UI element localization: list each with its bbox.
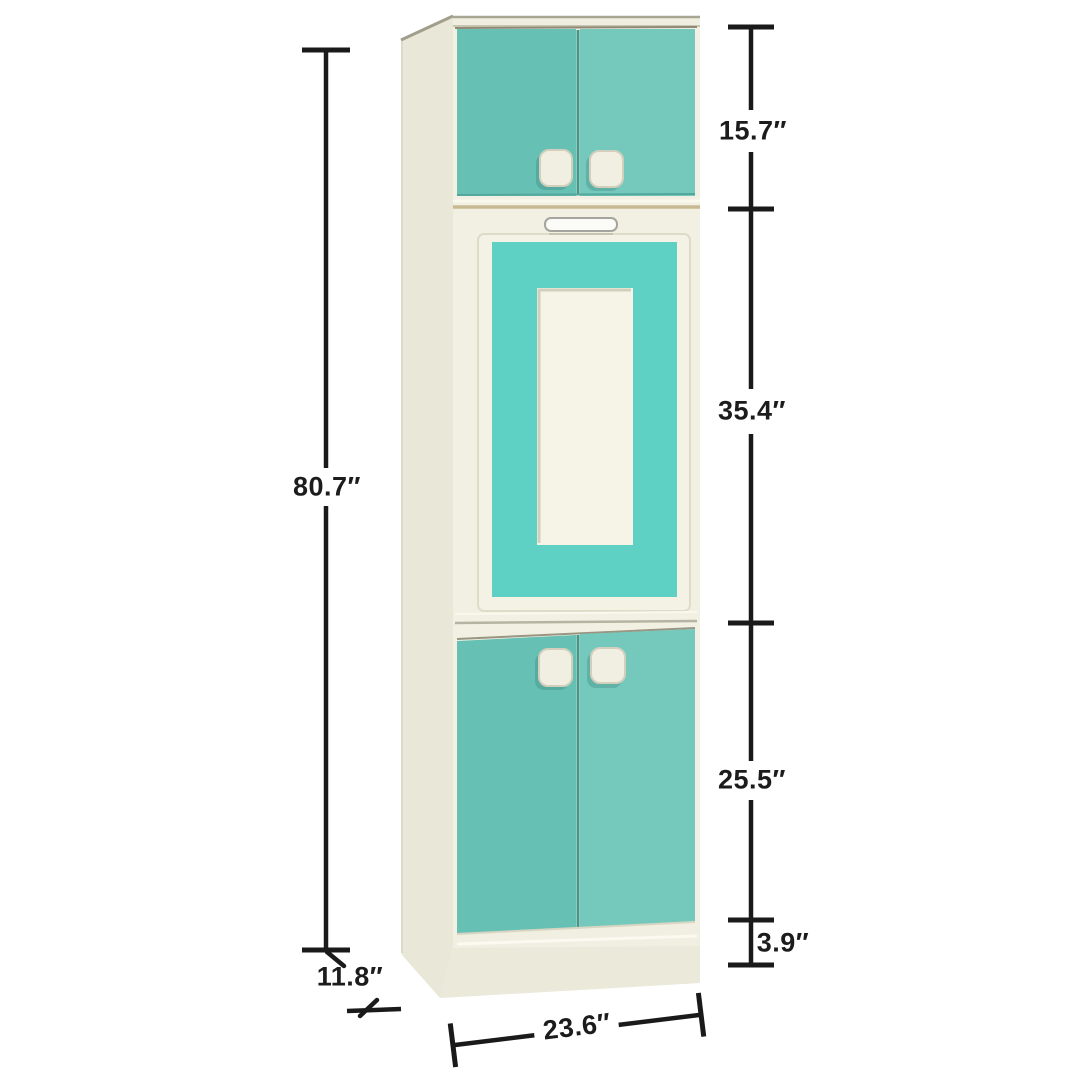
dim-overall-height-label: 80.7″ — [293, 472, 361, 503]
dim-cap — [450, 1023, 455, 1067]
dim-middle-section-label: 35.4″ — [718, 396, 786, 427]
top-right-door-handle — [590, 151, 623, 187]
top-left-door-handle — [540, 150, 572, 186]
cabinet-diagram-svg — [0, 0, 1080, 1080]
dim-depth-label: 11.8″ — [317, 962, 384, 993]
top-section-edge-line — [455, 27, 697, 28]
top-section — [455, 27, 697, 196]
cabinet-illustration — [401, 16, 700, 998]
dim-segment — [347, 1009, 401, 1011]
lower-section — [457, 628, 695, 935]
middle-section — [478, 218, 690, 611]
dim-segment — [453, 1035, 534, 1045]
plinth-base — [440, 946, 700, 998]
dim-cap — [698, 993, 703, 1037]
dim-top-section-label: 15.7″ — [719, 116, 787, 147]
dim-lower-section-label: 25.5″ — [718, 765, 786, 796]
cabinet-side-panel — [401, 16, 453, 998]
figure-canvas: 80.7″ 15.7″ 35.4″ 25.5″ 3.9″ 11.8″ 23.6″ — [0, 0, 1080, 1080]
drop-door-inner-panel — [537, 288, 633, 545]
dim-right-column-line — [728, 27, 774, 965]
top-door-bottom-edge — [457, 194, 695, 195]
dim-segment — [619, 1015, 701, 1025]
dim-overall-height-line — [302, 50, 350, 966]
dim-base-height-label: 3.9″ — [757, 928, 809, 959]
lower-right-door-handle — [591, 648, 625, 683]
drop-door-handle — [545, 218, 617, 231]
lower-left-door-handle — [539, 649, 572, 686]
dim-depth-line — [347, 1000, 401, 1016]
